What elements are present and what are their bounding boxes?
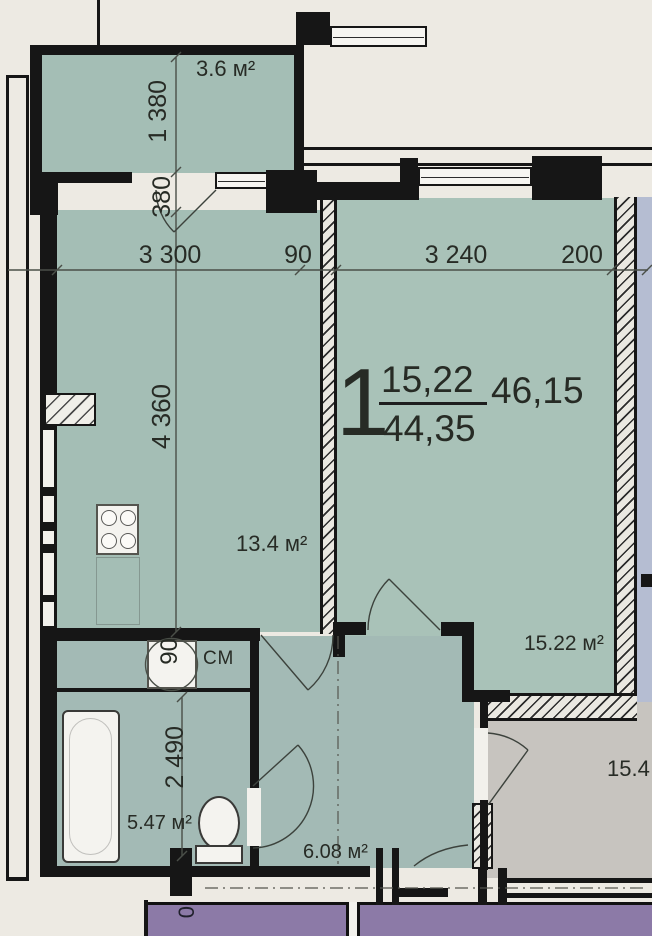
- adjacent-wall-left-upper: [480, 698, 488, 728]
- corridor-jamb-1: [376, 848, 383, 905]
- neighbor-unit-strip: [637, 197, 652, 702]
- corridor-wall-low: [399, 888, 448, 897]
- bathtub-icon: [62, 710, 120, 863]
- dim-shaft-partial: 0: [176, 906, 198, 918]
- balcony-wall-top: [30, 45, 304, 55]
- corridor-jamb-2: [392, 848, 399, 905]
- balcony-wall-right: [294, 45, 304, 177]
- unit-total-area: 44,35: [383, 410, 476, 447]
- corridor-rjamb-1: [478, 868, 487, 905]
- dim-living-width: 3 240: [408, 243, 504, 268]
- stove-burner: [101, 533, 117, 549]
- fraction-line: [379, 402, 487, 405]
- dim-kitchen-depth: 4 360: [148, 384, 174, 449]
- dim-outer-wall: 200: [556, 243, 608, 268]
- adjacent-door-opening: [474, 728, 488, 800]
- dim-balcony-door: 380: [150, 176, 175, 218]
- living-area-label: 15.22 м²: [524, 633, 604, 654]
- exterior-wall-left-outer: [6, 75, 9, 881]
- partition-wall-kitchen-living: [320, 198, 337, 634]
- window-jamb-left: [400, 158, 418, 186]
- toilet-tank-icon: [195, 845, 243, 864]
- corridor-band-jamb: [144, 900, 148, 936]
- wall-block-balcony-corner: [266, 170, 317, 213]
- left-window-1: [43, 430, 54, 487]
- corridor-rjamb-2: [498, 868, 507, 905]
- living-room-window: [418, 167, 532, 186]
- dim-niche-width: 90: [158, 638, 182, 665]
- unit-living-area: 15,22: [381, 361, 474, 398]
- corridor-double-bar-2: [507, 893, 652, 898]
- left-window-3: [43, 531, 54, 544]
- stove-icon: [96, 504, 139, 555]
- exterior-wall-cap-top: [6, 75, 29, 78]
- corridor-double-bar-1: [507, 878, 652, 883]
- apartment-wall-bottom: [57, 866, 370, 877]
- adjacent-area-label: 15.4: [607, 758, 650, 780]
- hallway-area-label: 6.08 м²: [303, 842, 368, 862]
- dim-partition-width: 90: [280, 243, 316, 268]
- neighbor-window: [330, 26, 427, 47]
- hallway-floor: [250, 636, 474, 868]
- balcony-area-label: 3.6 м²: [196, 58, 255, 80]
- dim-bathroom-depth: 2 490: [163, 726, 188, 789]
- dim-kitchen-width: 3 300: [122, 243, 218, 268]
- washing-machine-label: СМ: [203, 649, 234, 668]
- left-window-5: [43, 602, 54, 626]
- exterior-wall-cap-bottom: [6, 877, 29, 881]
- kitchen-area-label: 13.4 м²: [236, 533, 307, 555]
- toilet-bowl-icon: [198, 796, 240, 850]
- unit-area-with-balcony: 46,15: [491, 372, 584, 409]
- party-wall-right: [614, 197, 637, 704]
- stove-burner: [101, 510, 117, 526]
- bathtub-basin: [69, 718, 112, 855]
- balcony-divider-stub: [296, 12, 330, 45]
- facade-line-outer: [303, 147, 652, 150]
- vent-shaft: [44, 393, 96, 426]
- adjacent-wall-left-lower: [480, 800, 488, 870]
- kitchen-counter: [96, 557, 140, 625]
- wall-stub-bottom-left: [170, 848, 192, 896]
- corridor-band: [148, 902, 652, 936]
- bathroom-wall-right-upper: [250, 628, 259, 788]
- balcony-wall-left: [30, 45, 42, 177]
- floor-plan: 3.6 м² 1 380 380 3 300 90 3 240 200 4 36…: [0, 0, 652, 936]
- left-window-2: [43, 496, 54, 522]
- left-window-4: [43, 553, 54, 595]
- bathroom-door-opening: [247, 788, 261, 846]
- stove-burner: [120, 533, 136, 549]
- balcony-divider-line: [97, 0, 100, 47]
- right-edge-tick: [641, 574, 652, 587]
- facade-wall-right: [532, 156, 602, 200]
- dim-balcony-length: 1 380: [146, 80, 171, 143]
- bathroom-area-label: 5.47 м²: [127, 813, 192, 833]
- bathroom-wall-left: [40, 632, 57, 877]
- corridor-band-door: [346, 902, 360, 936]
- stove-burner: [120, 510, 136, 526]
- exterior-wall-left-inner: [26, 75, 29, 881]
- balcony-window: [215, 172, 268, 189]
- partition-end-v: [333, 622, 345, 657]
- adjacent-room-floor: [480, 698, 652, 878]
